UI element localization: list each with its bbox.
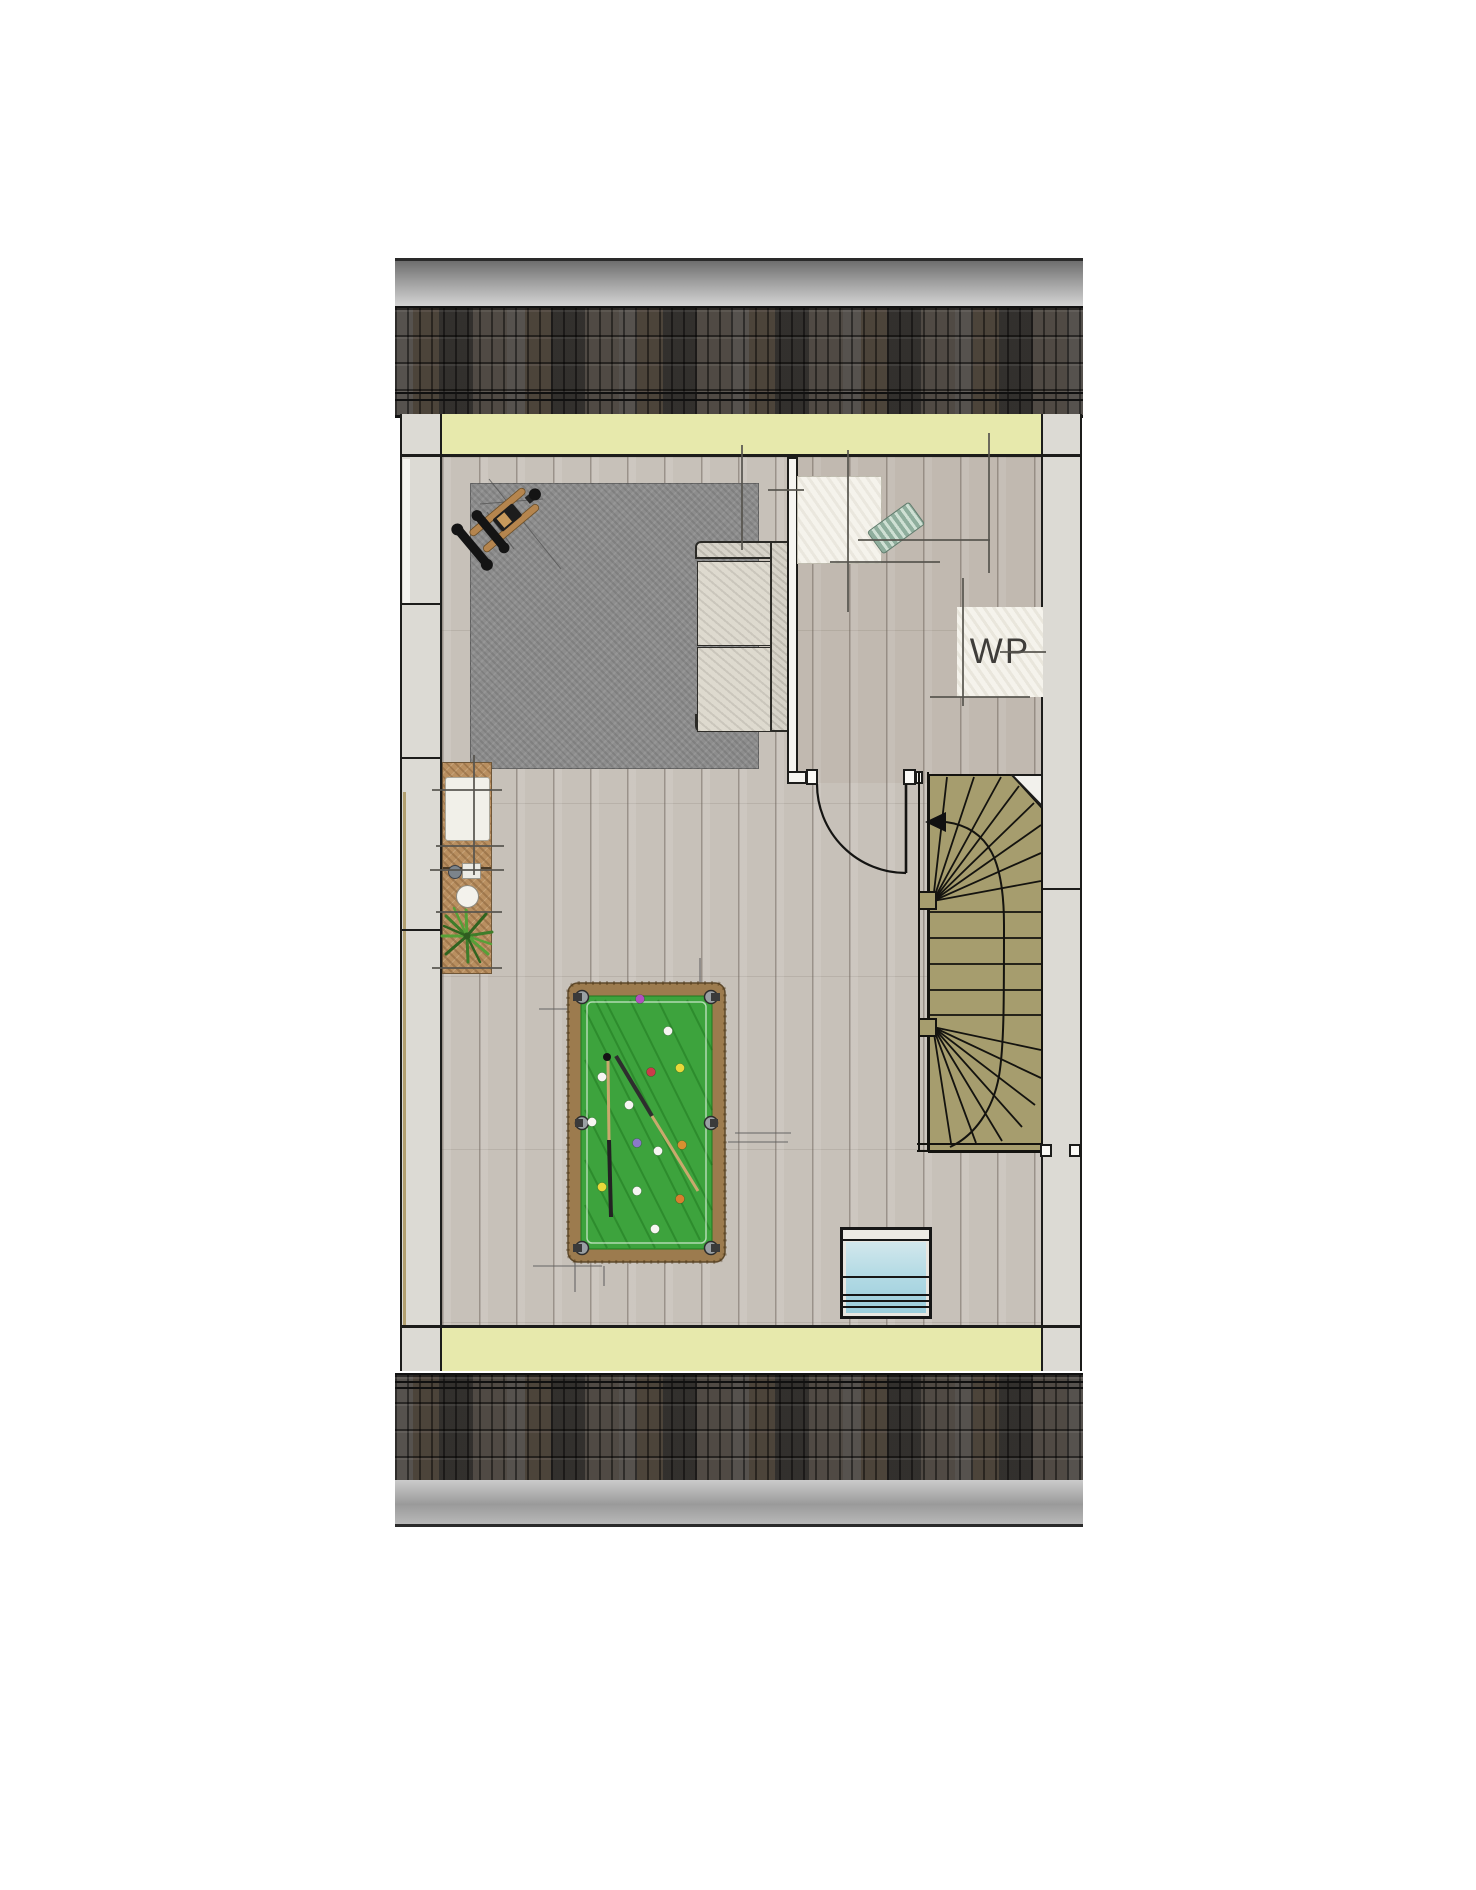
roof-edge-line xyxy=(403,792,406,1327)
roof-window-rail xyxy=(843,1294,929,1297)
floor-plan-canvas: WP xyxy=(0,0,1476,1890)
wall-junction xyxy=(400,603,442,605)
wall-recess xyxy=(403,459,410,603)
eave-line xyxy=(395,399,1083,401)
eave-line xyxy=(395,1387,1083,1389)
stair-newel-post xyxy=(919,892,936,909)
construction-line xyxy=(432,789,502,791)
construction-line xyxy=(847,450,849,612)
washing-machine-position xyxy=(797,476,882,564)
tray xyxy=(462,863,481,879)
roof-tiles-bottom xyxy=(395,1373,1083,1485)
roof-tiles-top xyxy=(395,306,1083,418)
construction-line xyxy=(858,539,990,541)
construction-line xyxy=(1000,651,1046,653)
wall-junction xyxy=(400,757,442,759)
construction-line xyxy=(741,445,743,550)
roof-window-rail xyxy=(843,1306,929,1309)
two-seat-sofa xyxy=(695,541,792,732)
winder-staircase xyxy=(914,768,1046,1158)
cup xyxy=(448,865,462,879)
construction-line xyxy=(962,578,964,706)
construction-line xyxy=(988,433,990,573)
construction-line xyxy=(430,869,504,871)
pool-table xyxy=(528,948,802,1292)
interior-door xyxy=(775,765,920,880)
roof-ridge-bottom xyxy=(395,1480,1083,1527)
construction-line xyxy=(830,561,940,563)
construction-line xyxy=(432,967,502,969)
eave-line xyxy=(395,392,1083,394)
construction-line xyxy=(436,911,502,913)
roof-ridge-top xyxy=(395,258,1083,309)
stair-jamb xyxy=(1040,1144,1052,1157)
bench-cushion xyxy=(445,777,490,841)
construction-line xyxy=(930,696,1030,698)
wall-junction xyxy=(1041,888,1082,890)
exterior-wall-right xyxy=(1041,414,1082,1371)
roof-window-top-bar xyxy=(843,1230,929,1241)
stair-jamb xyxy=(1069,1144,1081,1157)
roof-window-mullion xyxy=(843,1276,929,1279)
sofa-cushion xyxy=(697,561,771,646)
knee-wall-band-bottom xyxy=(400,1327,1082,1371)
door-swing-arc xyxy=(817,784,906,873)
eave-line xyxy=(395,1381,1083,1383)
construction-line xyxy=(473,755,475,875)
construction-line xyxy=(436,845,504,847)
sofa-cushion xyxy=(697,647,771,732)
roof-window xyxy=(840,1227,932,1319)
construction-line xyxy=(768,489,804,491)
floor-bottom-edge xyxy=(400,1325,1082,1328)
roof-window-rail xyxy=(843,1300,929,1303)
exercise-equipment xyxy=(428,448,588,600)
stair-newel-post xyxy=(919,1019,936,1036)
